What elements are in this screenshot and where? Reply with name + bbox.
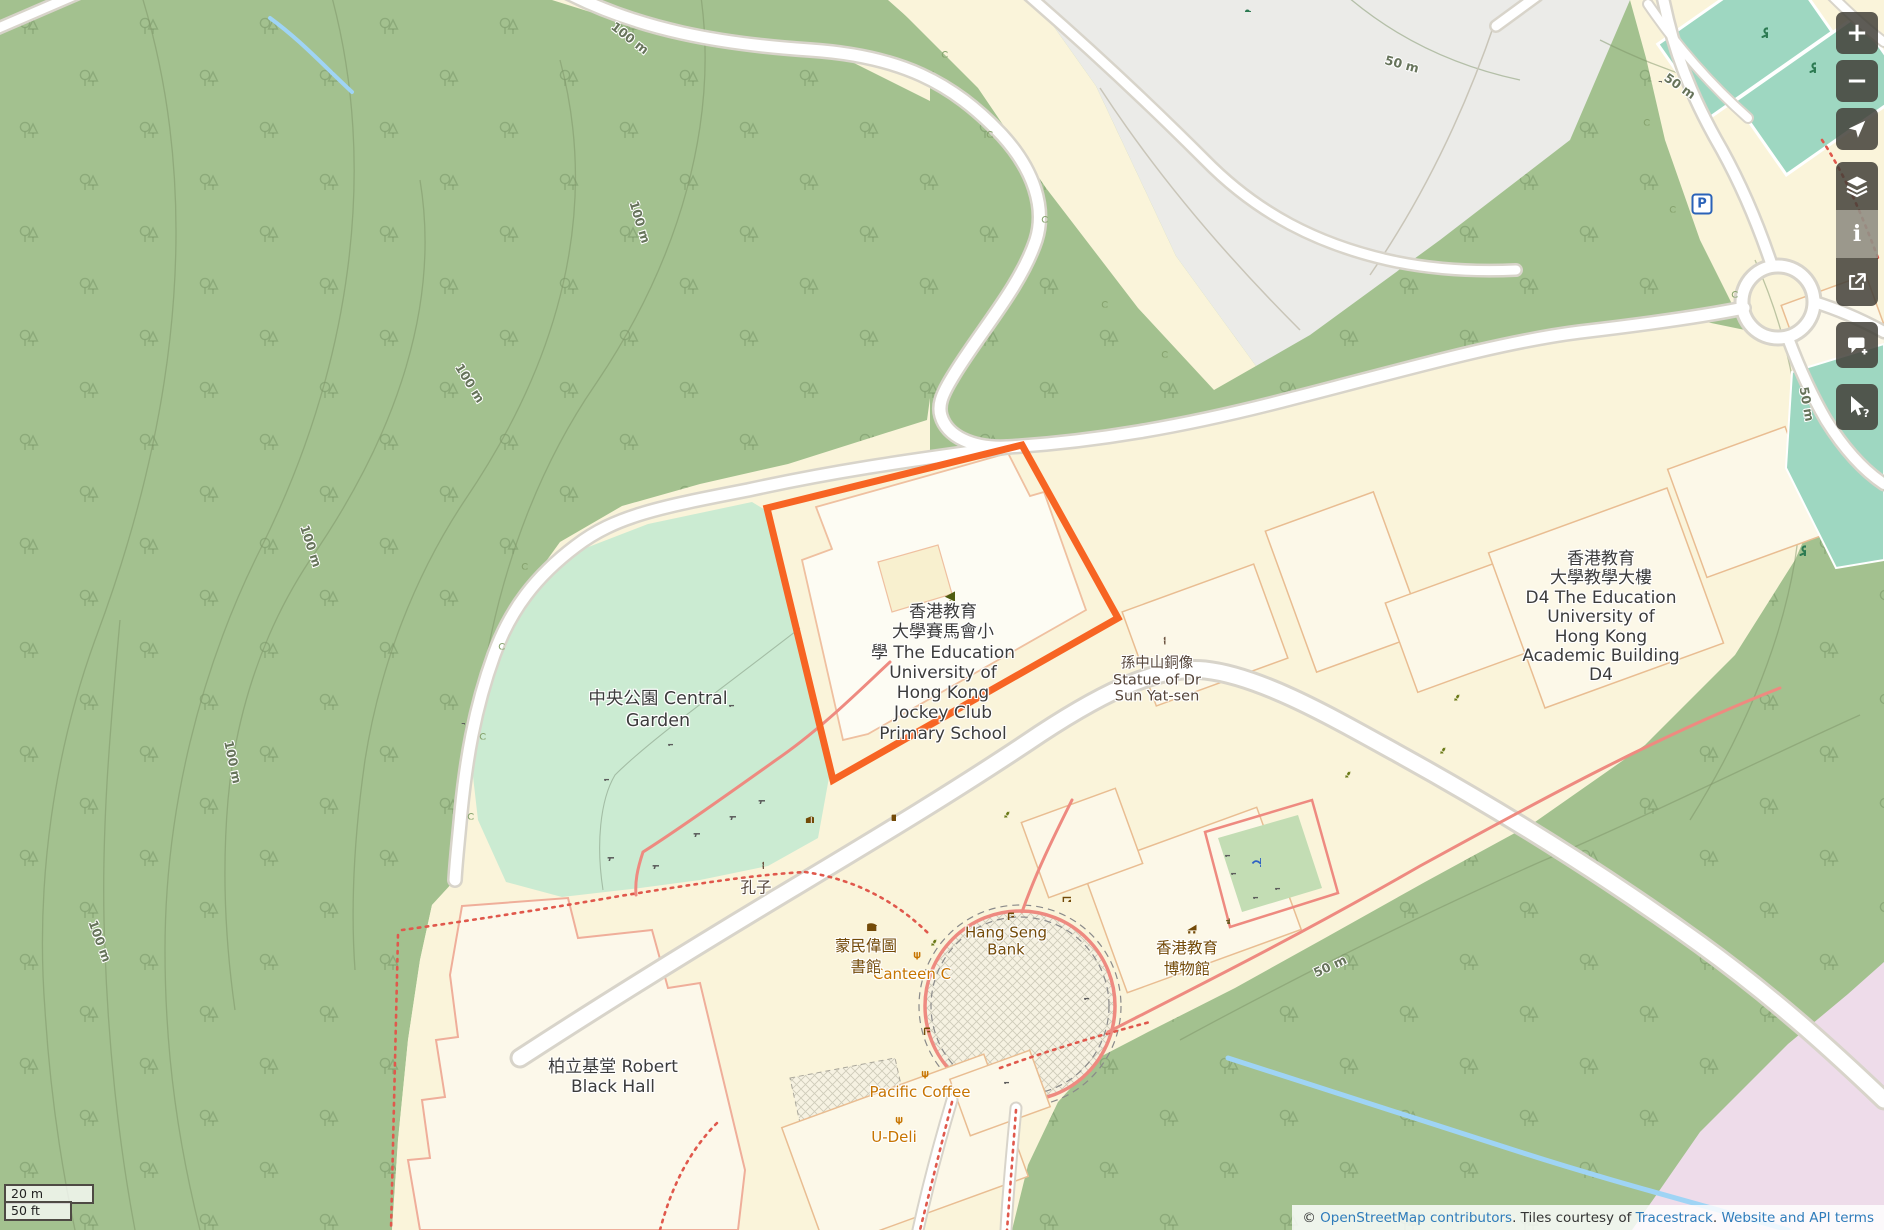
scale-imperial: 50 ft <box>4 1201 72 1221</box>
add-note-button[interactable] <box>1836 322 1878 368</box>
locate-arrow-icon <box>1846 118 1868 140</box>
zoom-in-button[interactable]: + <box>1836 12 1878 54</box>
comment-plus-icon <box>1845 333 1869 357</box>
query-features-button[interactable]: ? <box>1836 384 1878 430</box>
zoom-out-button[interactable]: − <box>1836 60 1878 102</box>
map-info-button[interactable]: i <box>1836 210 1878 258</box>
attribution-bar: © OpenStreetMap contributors. Tiles cour… <box>1292 1205 1884 1230</box>
plus-icon: + <box>1846 20 1868 46</box>
attribution-copyright: © <box>1302 1210 1320 1226</box>
minus-icon: − <box>1846 68 1868 94</box>
attribution-separator: . <box>1713 1210 1722 1226</box>
map-canvas[interactable]: ♻ ≠ <box>0 0 1884 1230</box>
map-tools-group: i <box>1836 162 1878 306</box>
svg-text:?: ? <box>1863 407 1869 420</box>
query-cursor-icon: ? <box>1844 394 1870 420</box>
share-button[interactable] <box>1836 258 1878 306</box>
show-location-button[interactable] <box>1836 108 1878 150</box>
attribution-middle: . Tiles courtesy of <box>1512 1210 1636 1226</box>
share-icon <box>1846 271 1868 293</box>
osm-contributors-link[interactable]: OpenStreetMap contributors <box>1320 1210 1512 1226</box>
tracestrack-link[interactable]: Tracestrack <box>1636 1210 1713 1226</box>
layers-button[interactable] <box>1836 162 1878 210</box>
terms-link[interactable]: Website and API terms <box>1721 1210 1874 1226</box>
map-base-layer: ♻ ≠ <box>0 0 1884 1230</box>
parking-icon: P <box>1692 194 1713 215</box>
layers-icon <box>1845 174 1869 198</box>
info-icon: i <box>1853 223 1861 245</box>
